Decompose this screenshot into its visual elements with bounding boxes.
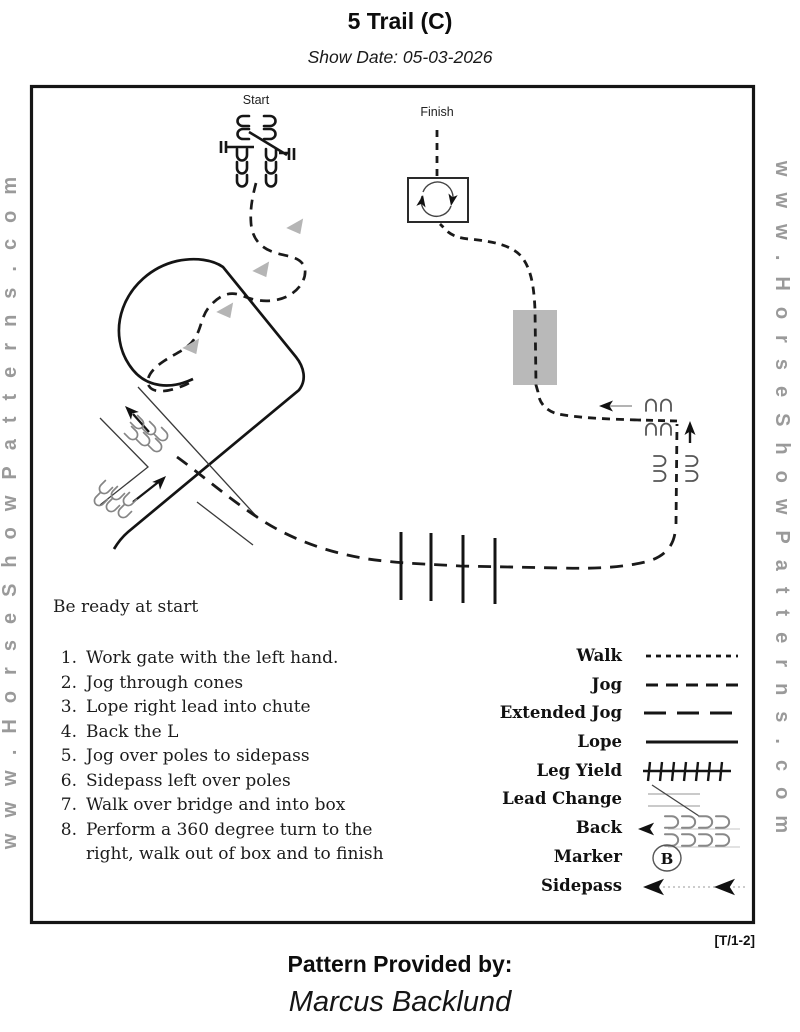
step-text: Work gate with the left hand. xyxy=(77,646,406,671)
instruction-step: 7. Walk over bridge and into box xyxy=(53,793,413,818)
sidepass-left-arrow xyxy=(599,401,632,412)
step-text: Sidepass left over poles xyxy=(77,769,406,794)
step-number: 5. xyxy=(53,744,77,769)
legend-label-jog: Jog xyxy=(422,675,622,694)
leg-yield-symbol xyxy=(643,762,731,781)
cone xyxy=(285,219,305,236)
instructions-block: Be ready at start 1. Work gate with the … xyxy=(53,597,413,867)
lead-change-symbol xyxy=(648,785,700,816)
marker-letter: B xyxy=(661,850,674,868)
instruction-step: 8. Perform a 360 degree turn to the righ… xyxy=(53,818,413,867)
step-text: Walk over bridge and into box xyxy=(77,793,406,818)
legend-label-lead-change: Lead Change xyxy=(422,789,622,808)
legend-label-extended-jog: Extended Jog xyxy=(422,703,622,722)
lope-path xyxy=(114,259,304,549)
legend-label-lope: Lope xyxy=(422,732,622,751)
legend-label-leg-yield: Leg Yield xyxy=(422,761,622,780)
finish-label: Finish xyxy=(420,105,453,119)
sidepass-up-arrow xyxy=(685,421,696,443)
step-text: Jog through cones xyxy=(77,671,406,696)
marker-symbol: B xyxy=(653,845,681,871)
legend-label-marker: Marker xyxy=(422,847,622,866)
step-text: Back the L xyxy=(77,720,406,745)
pattern-sheet: 5 Trail (C) Show Date: 05-03-2026 www.Ho… xyxy=(0,0,800,1032)
back-arrow-2 xyxy=(133,472,170,502)
sheet-code: [T/1-2] xyxy=(455,933,755,948)
instruction-step: 1. Work gate with the left hand. xyxy=(53,646,413,671)
instruction-step: 6. Sidepass left over poles xyxy=(53,769,413,794)
step-text: Lope right lead into chute xyxy=(77,695,406,720)
legend-label-sidepass: Sidepass xyxy=(422,876,622,895)
step-number: 7. xyxy=(53,793,77,818)
instruction-step: 4. Back the L xyxy=(53,720,413,745)
step-number: 6. xyxy=(53,769,77,794)
turn-arrow-down xyxy=(446,193,457,206)
course-diagram: Start Finish xyxy=(0,0,800,1032)
cone xyxy=(215,303,235,320)
poles xyxy=(401,532,495,604)
cones xyxy=(181,219,305,356)
cone xyxy=(251,262,271,279)
legend-label-back: Back xyxy=(422,818,622,837)
step-number: 2. xyxy=(53,671,77,696)
sidepass-symbol xyxy=(643,879,748,896)
step-text: Jog over poles to sidepass xyxy=(77,744,406,769)
step-number: 1. xyxy=(53,646,77,671)
gate-hoofprints xyxy=(237,116,276,187)
step-number: 8. xyxy=(53,818,77,867)
provider-name: Marcus Backlund xyxy=(0,986,800,1019)
provided-by-label: Pattern Provided by: xyxy=(0,951,800,978)
instruction-step: 5. Jog over poles to sidepass xyxy=(53,744,413,769)
step-number: 3. xyxy=(53,695,77,720)
back-hoofprints xyxy=(92,416,169,520)
legend-symbols: B xyxy=(638,656,748,895)
turn-box-obstacle xyxy=(408,127,468,222)
jog-serpentine-path xyxy=(148,183,305,391)
jog-over-poles-path xyxy=(177,457,676,568)
start-gate-obstacle xyxy=(221,116,294,187)
sidepass-obstacle xyxy=(599,400,698,525)
step-number: 4. xyxy=(53,720,77,745)
legend-label-walk: Walk xyxy=(422,646,622,665)
start-label: Start xyxy=(243,93,270,107)
instruction-step: 2. Jog through cones xyxy=(53,671,413,696)
back-l-obstacle xyxy=(92,387,258,545)
ready-note: Be ready at start xyxy=(53,597,413,617)
back-symbol xyxy=(638,816,740,847)
instruction-step: 3. Lope right lead into chute xyxy=(53,695,413,720)
step-text: Perform a 360 degree turn to the right, … xyxy=(77,818,406,867)
